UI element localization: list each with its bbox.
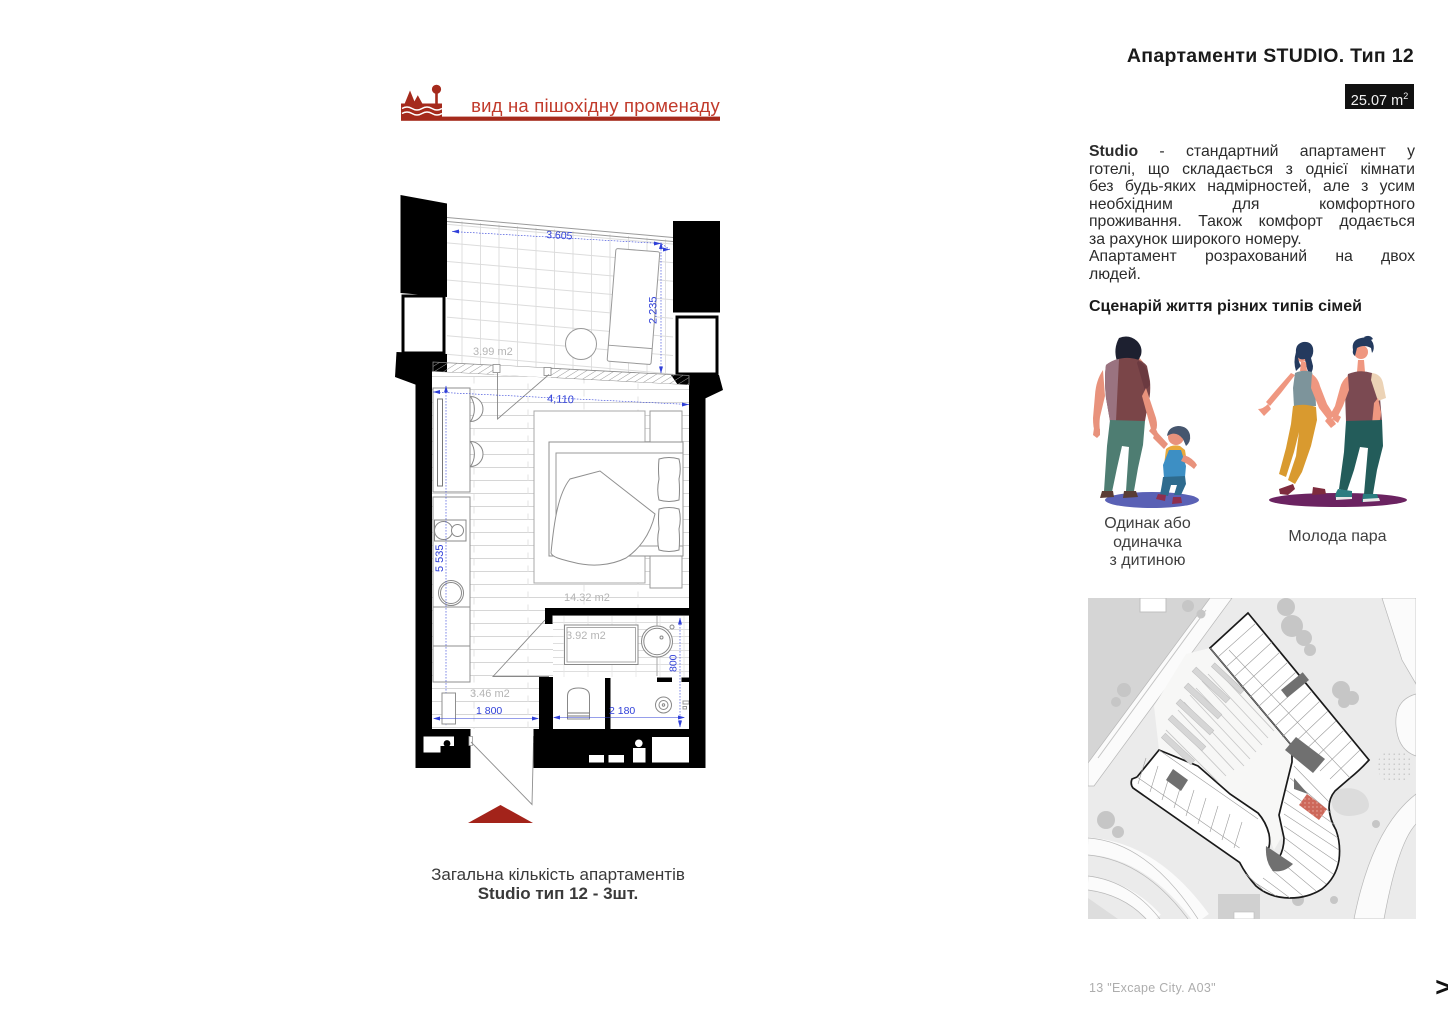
svg-text:3.46 m2: 3.46 m2 [470,688,510,700]
svg-text:5 535: 5 535 [434,544,446,572]
svg-text:4,110: 4,110 [547,393,574,406]
svg-text:2.235: 2.235 [648,296,660,324]
svg-text:14.32 m2: 14.32 m2 [564,592,610,604]
svg-text:3.92 m2: 3.92 m2 [566,630,606,642]
svg-text:3.605: 3.605 [546,229,573,242]
svg-text:3.99 m2: 3.99 m2 [473,346,513,358]
svg-text:1 800: 1 800 [476,705,502,717]
svg-text:800: 800 [668,654,680,672]
svg-text:2 180: 2 180 [609,705,635,717]
svg-text:вид на пішохідну променаду: вид на пішохідну променаду [471,95,720,116]
